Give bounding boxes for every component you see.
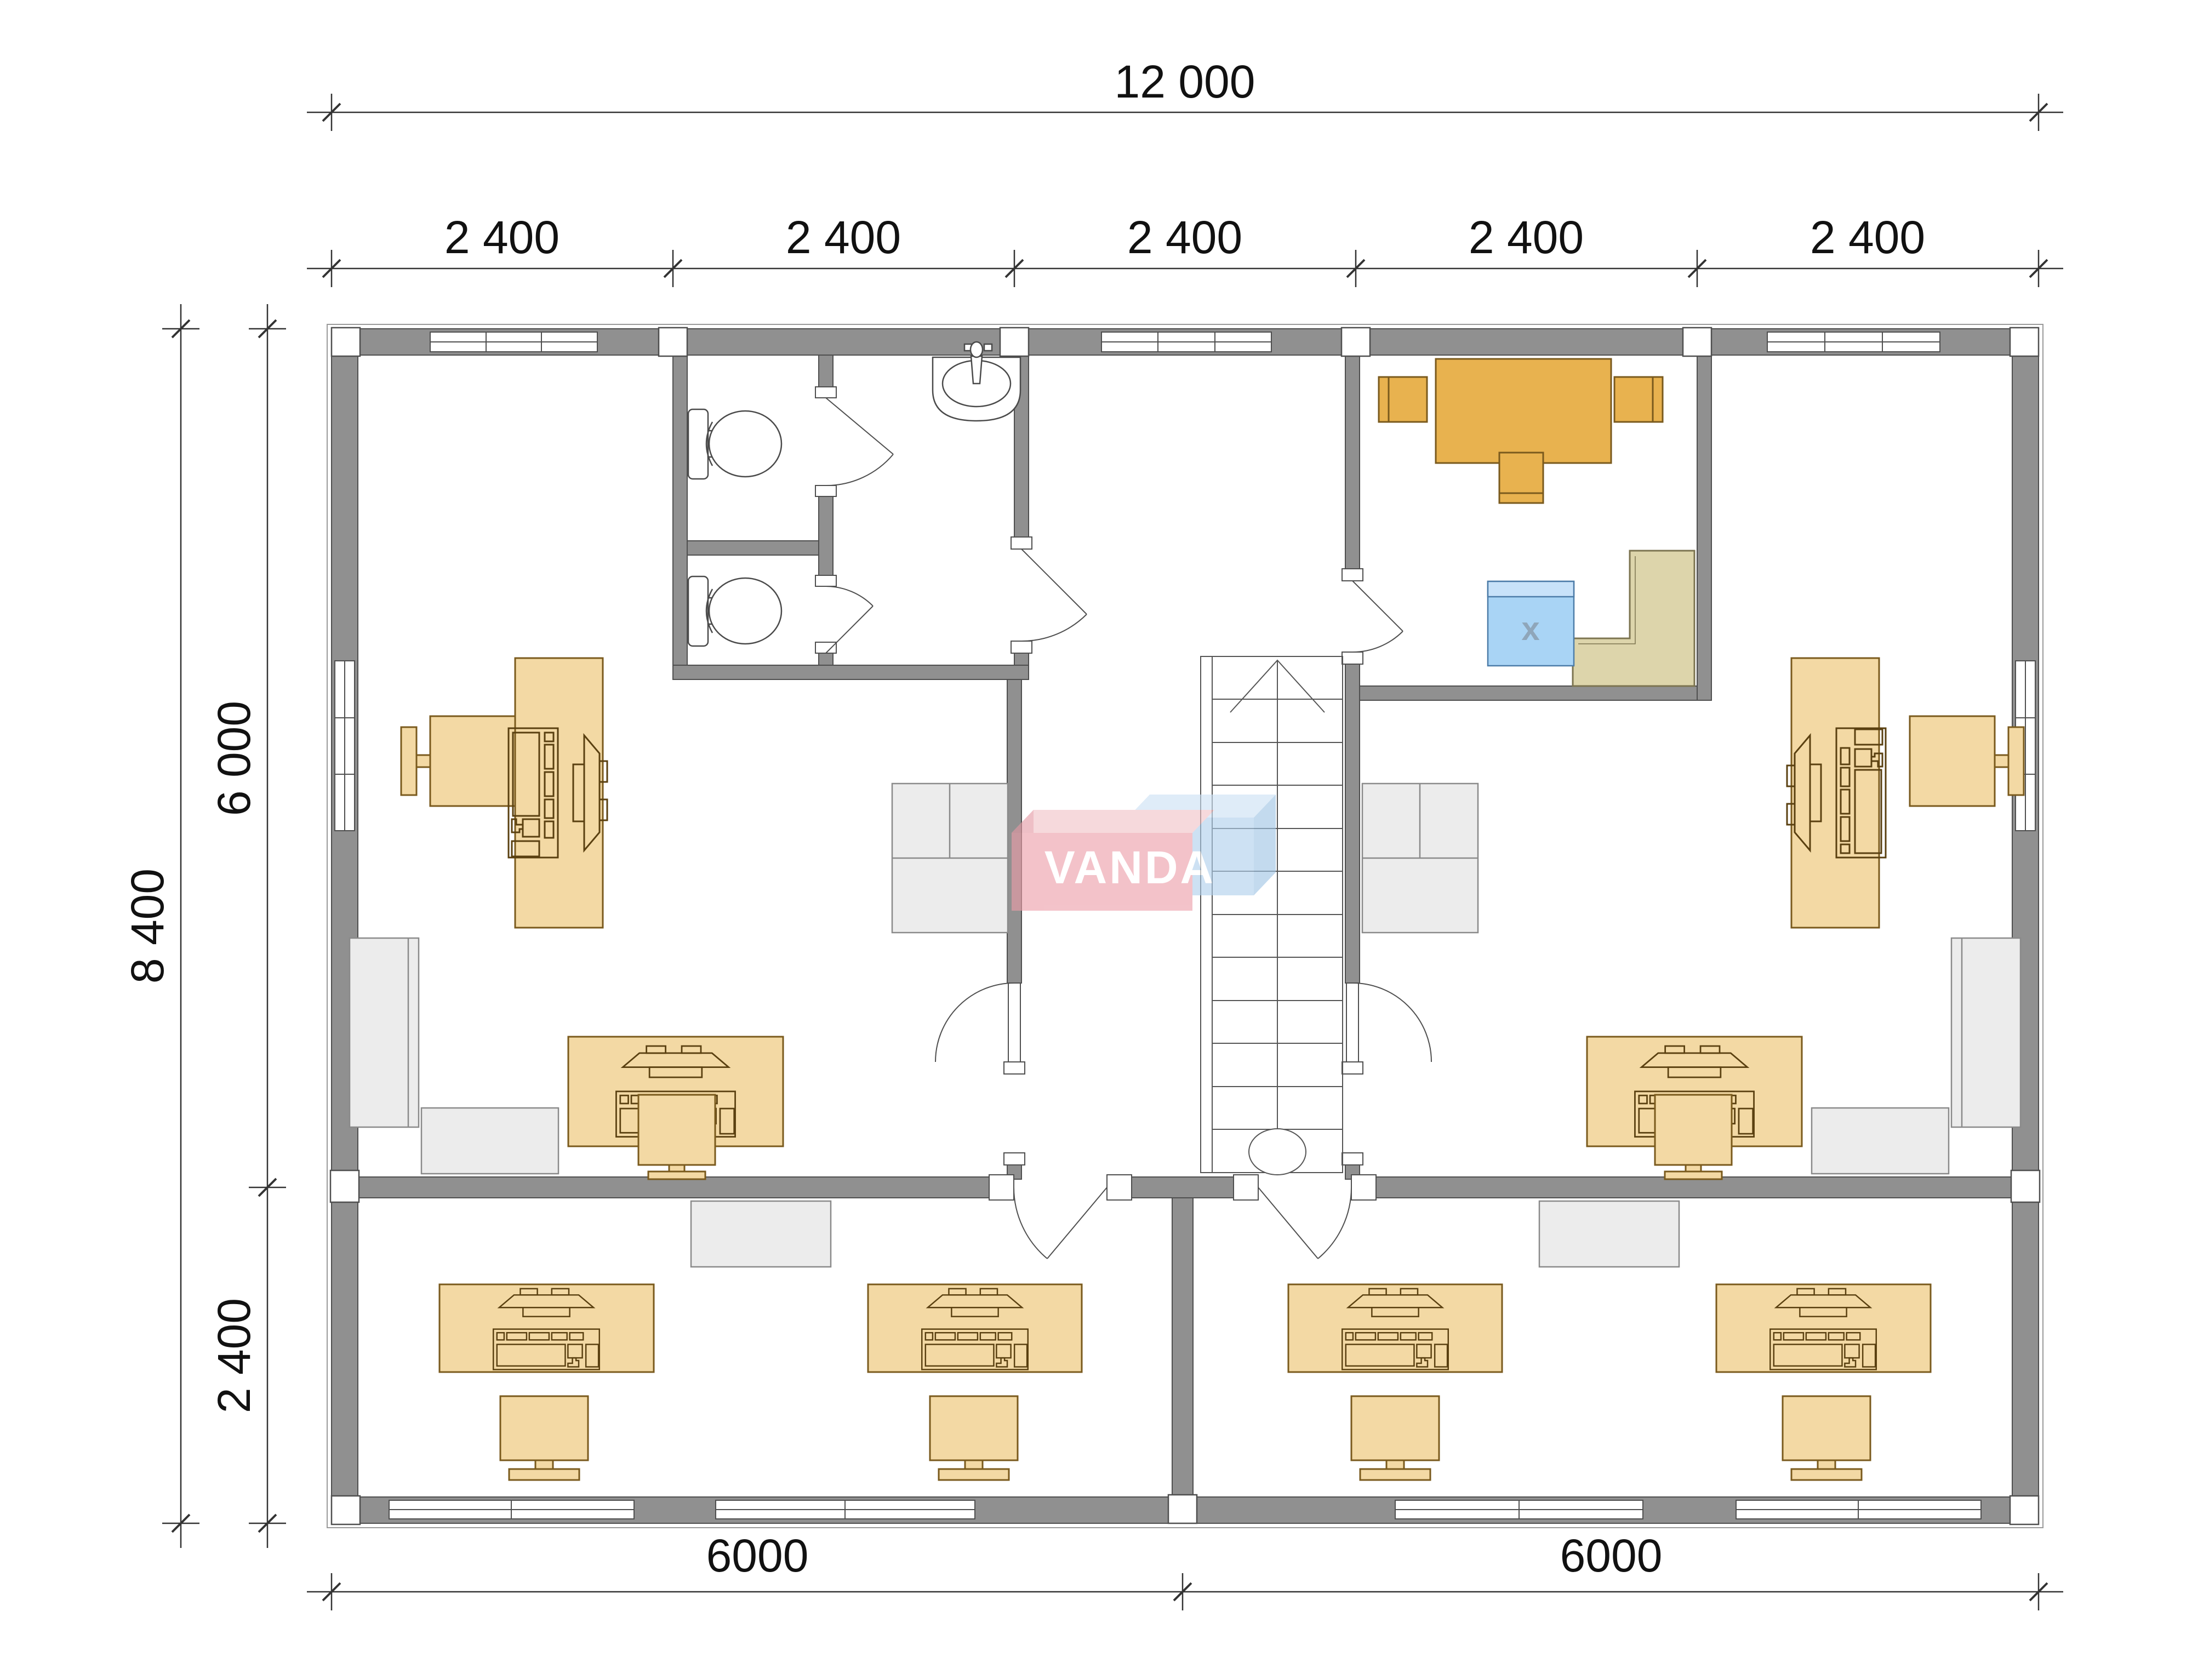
- door-left-office: [935, 983, 1025, 1165]
- watermark-text: VANDA: [1044, 842, 1215, 893]
- wall-exterior-right: [2012, 329, 2039, 1523]
- dim-label-bay-1: 2 400: [444, 212, 560, 263]
- chair-left-office-2: [638, 1095, 715, 1179]
- kitchen-counter: [1573, 551, 1694, 686]
- dim-label-bottom-right: 6000: [1560, 1530, 1663, 1581]
- dim-label-bay-3: 2 400: [1127, 212, 1242, 263]
- toilet-2: [688, 576, 781, 646]
- window-top-bay1: [430, 332, 597, 352]
- dim-bottom-halves: [307, 1573, 2063, 1610]
- meeting-chair-right: [1614, 377, 1663, 422]
- column-left-midwall: [330, 1170, 359, 1202]
- meeting-chair-left: [1379, 377, 1427, 422]
- door-wc-stall-1: [815, 387, 893, 496]
- wall-mid-left: [332, 1177, 989, 1198]
- door-right-office: [1342, 983, 1431, 1165]
- door-wc-stall-2: [815, 575, 873, 653]
- chair-right-office-2: [1655, 1095, 1732, 1179]
- window-bottom-left-2: [716, 1500, 975, 1519]
- wall-kitchen-bottom: [1360, 686, 1711, 700]
- chair-br-2: [1783, 1396, 1870, 1480]
- toilet-1: [688, 409, 781, 479]
- room-bottom-left-furniture: [439, 1284, 1082, 1480]
- wall-stall-front-2: [819, 496, 833, 575]
- kitchen-appliance: x: [1488, 581, 1574, 666]
- desk-right-office-1: [1791, 658, 1879, 928]
- sanitary-fixtures: [688, 342, 1020, 646]
- dim-label-lower-depth: 2 400: [208, 1298, 260, 1413]
- cabinet-right-wall: [1951, 938, 2020, 1127]
- wall-kitchen-left-upper: [1345, 355, 1360, 569]
- floor-plan-drawing: 12 000 2 400 2 400 2 400 2 400 2 400 8 4…: [0, 0, 2192, 1680]
- desk-bl-1: [439, 1284, 654, 1372]
- dim-label-bottom-left: 6000: [706, 1530, 809, 1581]
- column-top-right-corner: [2010, 328, 2039, 356]
- window-bottom-right-1: [1395, 1500, 1643, 1519]
- desk-bl-2: [868, 1284, 1082, 1372]
- window-top-bay3: [1101, 332, 1271, 352]
- wall-mid-center: [1132, 1177, 1234, 1198]
- window-bottom-left-1: [389, 1500, 634, 1519]
- window-top-bay5: [1767, 332, 1940, 352]
- column-top-bay4: [1683, 328, 1711, 356]
- wall-toilet-left: [673, 355, 687, 679]
- cabinet-hall-left: [892, 784, 1008, 933]
- cabinet-bottom-left-room: [691, 1201, 831, 1267]
- column-top-bay3: [1342, 328, 1370, 356]
- column-top-bay1: [659, 328, 687, 356]
- wall-bottom-center: [1172, 1198, 1193, 1497]
- kitchen-furniture: [1379, 359, 1663, 503]
- chair-bl-1: [500, 1396, 588, 1480]
- meeting-table: [1436, 359, 1611, 463]
- dim-label-upper-depth: 6 000: [208, 701, 260, 816]
- desk-br-1: [1288, 1284, 1502, 1372]
- wall-lobby-right-lower: [1014, 653, 1029, 665]
- wall-mid-right: [1376, 1177, 2012, 1198]
- chair-br-1: [1351, 1396, 1439, 1480]
- column-top-bay2: [1000, 328, 1029, 356]
- staircase: [1201, 656, 1343, 1175]
- dim-label-bay-2: 2 400: [786, 212, 901, 263]
- window-left-wall: [335, 661, 355, 831]
- wall-toilet-bottom: [673, 665, 1029, 679]
- sideboard-left-office: [421, 1108, 558, 1174]
- column-bottom-left-corner: [332, 1496, 360, 1524]
- cabinet-left-wall: [350, 938, 419, 1127]
- wall-stall-front-3: [819, 653, 833, 665]
- desk-left-office-1: [515, 658, 603, 928]
- sideboard-right-office: [1812, 1108, 1949, 1174]
- meeting-chair-bottom: [1499, 453, 1543, 503]
- stair-start-symbol: [1249, 1129, 1306, 1175]
- dim-label-overall-width: 12 000: [1115, 56, 1255, 107]
- door-entrance-right: [1234, 1175, 1376, 1259]
- chair-right-office-1: [1910, 716, 2024, 806]
- column-right-midwall: [2011, 1170, 2040, 1202]
- dim-label-bay-4: 2 400: [1469, 212, 1584, 263]
- column-bottom-right-corner: [2010, 1496, 2039, 1524]
- cabinet-hall-right: [1362, 784, 1478, 933]
- cabinet-bottom-right-room: [1539, 1201, 1679, 1267]
- door-kitchen: [1342, 569, 1403, 664]
- chair-left-office-1: [401, 716, 515, 806]
- wall-stall-front-1: [819, 355, 833, 387]
- wall-kitchen-right: [1697, 355, 1711, 700]
- dim-label-overall-depth: 8 400: [122, 868, 173, 984]
- column-top-left-corner: [332, 328, 360, 356]
- wall-stall-divider: [687, 541, 819, 555]
- wall-stair-right: [1345, 664, 1360, 983]
- wall-exterior-left: [332, 329, 358, 1523]
- window-bottom-right-2: [1736, 1500, 1981, 1519]
- door-entrance-left: [989, 1175, 1132, 1259]
- door-toilet-lobby: [1011, 537, 1087, 653]
- column-bottom-center: [1168, 1495, 1197, 1523]
- office-left-furniture: [401, 658, 783, 1179]
- desk-br-2: [1716, 1284, 1931, 1372]
- vanda-watermark: VANDA: [1012, 795, 1276, 911]
- chair-bl-2: [930, 1396, 1018, 1480]
- appliance-x-label: x: [1521, 610, 1539, 647]
- room-bottom-right-furniture: [1288, 1284, 1931, 1480]
- dim-label-bay-5: 2 400: [1810, 212, 1925, 263]
